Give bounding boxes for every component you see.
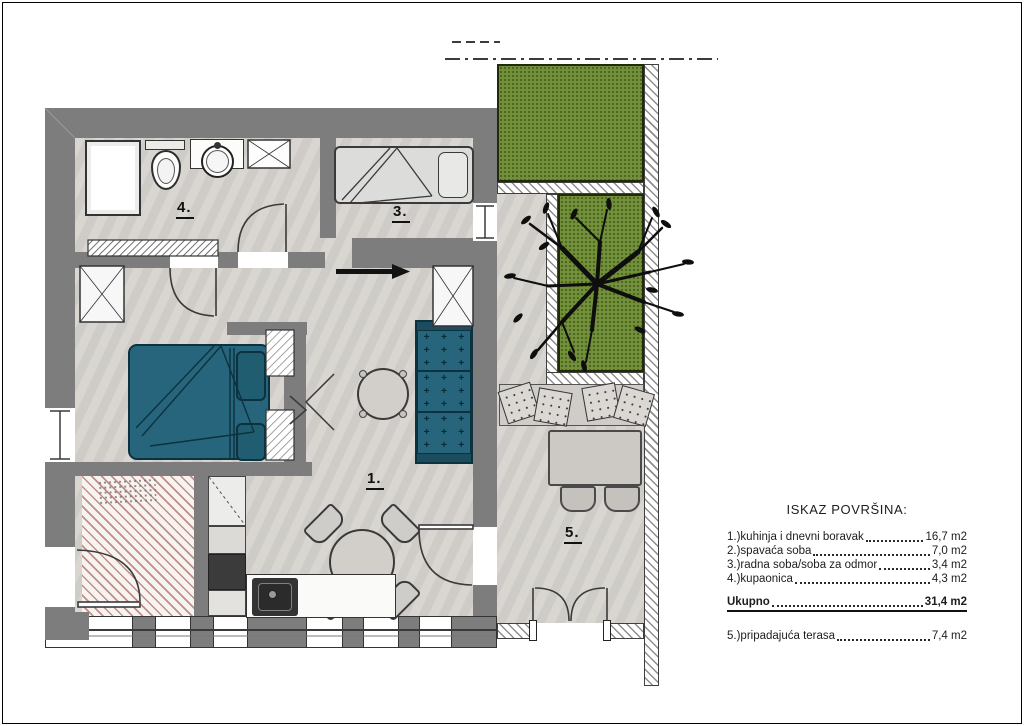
wall-bath-bottom-a [75,252,170,268]
terrace-chair [604,486,640,512]
dot-leader [866,540,924,542]
room-label-bathroom: 4. [176,199,194,219]
legend-row: Ukupno31,4 m2 [727,595,967,612]
sofa-armrest-bottom [417,454,471,462]
legend-row-label: 5.)pripadajuća terasa [727,629,835,643]
single-bed-pillow [438,152,468,198]
facade-pillar [132,616,156,648]
entry-doormat [97,477,156,504]
area-legend: ISKAZ POVRŠINA: 1.)kuhinja i dnevni bora… [727,502,967,643]
wall-bedroom-right [284,322,306,462]
terrace-walkway [497,194,546,386]
double-bed-pillow-bottom [236,423,266,461]
facade-pillar [342,616,364,648]
legend-row: 1.)kuhinja i dnevni boravak 16,7 m2 [727,530,967,544]
kitchen-appliance [208,554,246,590]
wall-right-upper [473,108,497,203]
terrace-door-gap [533,623,607,639]
floor-plan-page: +++++++++ +++++++++ +++++++++ 4. 3. 1. 5… [0,0,1024,726]
legend-row-value: 3,4 m2 [932,558,967,572]
legend-row-label: 2.)spavaća soba [727,544,811,558]
legend-row-value: 16,7 m2 [925,530,967,544]
room3-window-gap [473,203,497,241]
garden-upper [497,64,644,182]
dot-leader [879,568,930,570]
garden-lower [558,194,644,372]
wall-bath-bottom-c [288,252,325,268]
wall-bedroom-bottom [75,462,312,476]
legend-row: 3.)radna soba/soba za odmor3,4 m2 [727,558,967,572]
bedroom-window-gap [45,408,75,462]
toilet-tank [145,140,185,150]
bedroom-door-gap [170,252,218,268]
legend-row-value: 31,4 m2 [925,595,967,609]
wall-top [45,108,497,138]
kitchen-cabinet [208,590,246,616]
wall-right-middle [473,241,497,527]
dot-leader [837,639,930,641]
double-bed-pillow-top [236,351,266,401]
legend-row-label: 4.)kupaonica [727,572,793,586]
legend-row: 4.)kupaonica4,3 m2 [727,572,967,586]
entry-door-gap [45,547,75,607]
facade-pillar [190,616,214,648]
shower-tray [85,140,141,216]
terrace-table [548,430,642,486]
legend-row-value: 7,4 m2 [932,629,967,643]
sofa-cushion: +++++++++ [417,330,471,371]
terrace-access-door-gap [473,527,497,585]
kitchen-faucet [268,590,277,599]
legend-rows: 1.)kuhinja i dnevni boravak 16,7 m22.)sp… [727,530,967,643]
room-label-terrace: 5. [564,524,582,544]
terrace-wall-south-right [607,623,644,639]
garden-divider-wall [497,182,644,194]
dot-leader [772,605,923,607]
legend-row-value: 4,3 m2 [932,572,967,586]
terrace-door-post-right [603,620,611,641]
dot-leader [813,554,929,556]
wall-kitchen-divider [194,476,208,616]
facade-pillar-end [451,616,497,648]
boundary-dash-short [452,41,500,43]
terrace-wall-south-left [497,623,533,639]
coffee-table [357,368,409,420]
kitchen-cabinet [208,526,246,554]
legend-row: 5.)pripadajuća terasa7,4 m2 [727,629,967,643]
kitchen-cabinet [208,476,246,526]
legend-row-label: 1.)kuhinja i dnevni boravak [727,530,864,544]
legend-row: 2.)spavaća soba7,0 m2 [727,544,967,558]
legend-row-label: 3.)radna soba/soba za odmor [727,558,877,572]
facade-pillar [398,616,420,648]
legend-title: ISKAZ POVRŠINA: [727,502,967,517]
sofa-armrest-top [417,322,471,330]
wall-left-upper [45,108,75,408]
room-label-living: 1. [366,470,384,490]
terrace-wall-right [644,64,659,686]
sofa-cushion: +++++++++ [417,412,471,454]
terrace-door-post-left [529,620,537,641]
facade-corner-block [45,612,89,640]
terrace-chair [560,486,596,512]
legend-row-value: 7,0 m2 [932,544,967,558]
room-label-room3: 3. [392,203,410,223]
washbasin-inner [206,150,229,173]
wall-room3-bottom [352,238,473,268]
boundary-dashdot-line [445,58,718,60]
bathroom-door-gap [238,252,288,268]
washbasin-faucet [214,142,221,149]
dot-leader [795,582,930,584]
sofa-cushion: +++++++++ [417,371,471,412]
planter-wall-left [546,194,558,386]
wall-left-middle [45,462,75,547]
facade-panel [247,616,307,648]
wall-bath-bottom-b [218,252,238,268]
bench-cushion [533,387,572,426]
legend-row-label: Ukupno [727,595,770,609]
